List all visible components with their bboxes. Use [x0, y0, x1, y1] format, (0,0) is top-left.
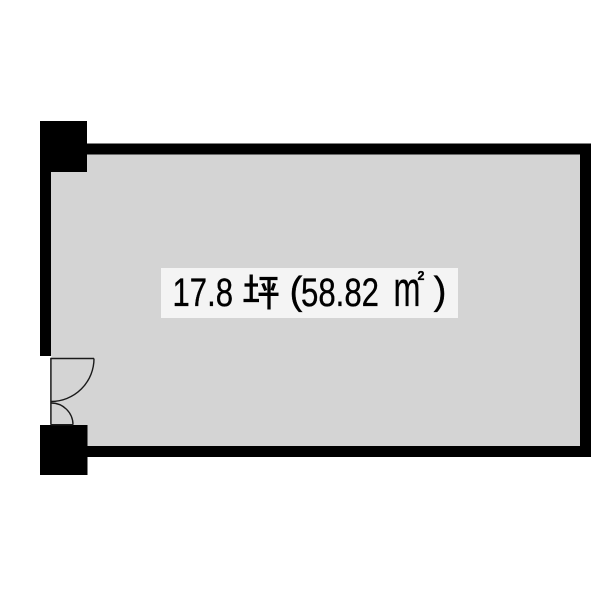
svg-text:2: 2: [418, 269, 425, 283]
svg-text:m: m: [394, 263, 421, 317]
svg-text:): ): [434, 270, 447, 313]
svg-text:58.82: 58.82: [301, 271, 379, 315]
svg-text:17.8: 17.8: [173, 271, 234, 315]
